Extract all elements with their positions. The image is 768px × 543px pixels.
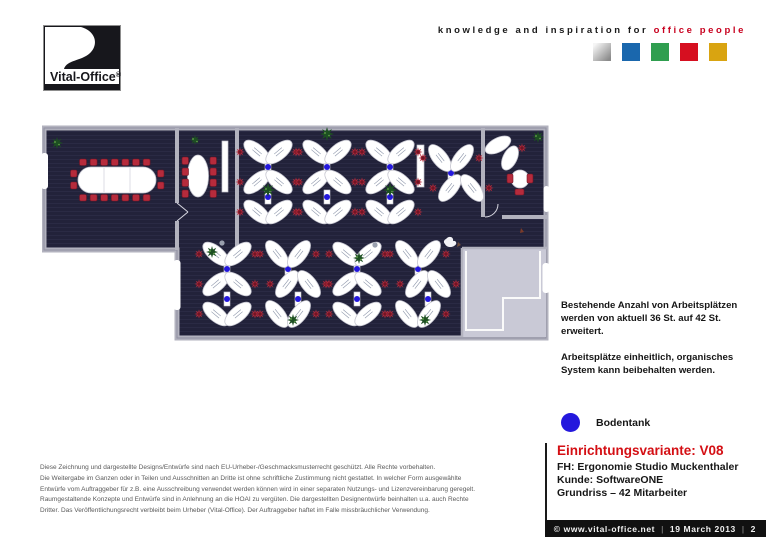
task-chair-seat (388, 312, 391, 315)
plant-leaf (290, 318, 292, 320)
task-chair-seat (421, 156, 424, 159)
task-chair-seat (197, 252, 200, 255)
plant-leaf (328, 135, 330, 137)
task-chair-seat (197, 312, 200, 315)
task-chair-seat (238, 210, 241, 213)
footer-page-number: 2 (751, 524, 756, 534)
conference-chair (90, 195, 97, 202)
door-entry-right (543, 263, 550, 293)
title-line-fh: FH: Ergonomie Studio Muckenthaler (557, 461, 762, 474)
task-chair-seat (431, 186, 434, 189)
conference-chair (71, 182, 78, 189)
task-chair-seat (360, 150, 363, 153)
bodentank-dot-icon (561, 413, 580, 432)
tagline-red: office people (654, 25, 746, 36)
meeting-chair (182, 168, 189, 176)
bodentank-dot (224, 296, 230, 302)
title-line-kunde: Kunde: SoftwareONE (557, 474, 762, 487)
bodentank-dot (425, 296, 431, 302)
meeting-chair (182, 157, 189, 165)
vital-office-logo: Vital-Office® (43, 25, 121, 91)
plant-leaf (54, 141, 56, 143)
title-line-grundriss: Grundriss – 42 Mitarbeiter (557, 487, 762, 500)
conference-table (78, 167, 156, 193)
brand-color-squares (593, 43, 727, 61)
task-chair-seat (268, 282, 271, 285)
task-chair-seat (258, 252, 261, 255)
bodentank-dot (354, 296, 360, 302)
title-block: Einrichtungsvariante: V08 FH: Ergonomie … (557, 443, 762, 500)
task-chair-seat (398, 282, 401, 285)
task-chair-seat (238, 150, 241, 153)
task-chair-seat (258, 312, 261, 315)
window-left-band (174, 260, 181, 310)
plant-leaf (356, 256, 358, 258)
bodentank-dot (324, 194, 330, 200)
conference-chair (101, 159, 108, 166)
variant-title: Einrichtungsvariante: V08 (557, 443, 762, 458)
plant-leaf (391, 191, 393, 193)
door-office-right (544, 186, 550, 212)
plant-leaf (265, 188, 267, 190)
task-chair-seat (253, 282, 256, 285)
conference-chair (80, 195, 87, 202)
task-chair-seat (383, 282, 386, 285)
task-chair-seat (487, 186, 490, 189)
logo-icon: Vital-Office® (43, 25, 121, 91)
conference-chair (90, 159, 97, 166)
whiteboard-meeting (222, 141, 228, 192)
brand-square-silver (593, 43, 611, 61)
conference-chair (133, 159, 140, 166)
plant-leaf (324, 132, 326, 134)
plant-leaf (426, 321, 428, 323)
bodentank-dot (387, 164, 393, 170)
meeting-table (188, 155, 209, 197)
footer-separator: | (742, 524, 745, 534)
task-chair-seat (314, 312, 317, 315)
office-round-table (511, 170, 529, 188)
meeting-chair (210, 157, 217, 165)
logo-text: Vital-Office® (50, 70, 121, 84)
plant-leaf (422, 318, 424, 320)
floor-plan (42, 124, 552, 342)
office-chair (507, 174, 513, 183)
office-chair (515, 189, 524, 195)
task-chair-seat (353, 210, 356, 213)
annotation-para-1: Bestehende Anzahl von Arbeitsplätzen wer… (561, 299, 761, 339)
conference-chair (143, 159, 150, 166)
plant-icon (190, 135, 200, 145)
task-chair-seat (327, 252, 330, 255)
bodentank-dot (324, 164, 330, 170)
task-chair-seat (353, 150, 356, 153)
plant-leaf (196, 141, 198, 143)
task-chair-seat (444, 252, 447, 255)
bodentank-dot (354, 266, 360, 272)
conference-chair (158, 170, 165, 177)
task-chair-seat (477, 156, 480, 159)
task-chair-seat (388, 252, 391, 255)
conference-chair (133, 195, 140, 202)
office-chair (527, 174, 533, 183)
task-chair-seat (327, 282, 330, 285)
conference-chair (71, 170, 78, 177)
tagline: knowledge and inspiration for office peo… (438, 25, 746, 36)
task-chair-seat (353, 180, 356, 183)
plant-leaf (209, 250, 211, 252)
plant-leaf (387, 188, 389, 190)
conference-chair (111, 195, 118, 202)
plant-leaf (192, 138, 194, 140)
plant-leaf (58, 144, 60, 146)
annotation-text: Bestehende Anzahl von Arbeitsplätzen wer… (561, 299, 761, 389)
legend-label: Bodentank (596, 417, 650, 429)
legal-text: Diese Zeichnung und dargestellte Designs… (40, 463, 518, 517)
conference-chair (122, 195, 129, 202)
title-divider (545, 443, 547, 520)
task-chair-seat (327, 312, 330, 315)
conference-chair (158, 182, 165, 189)
annotation-para-2: Arbeitsplätze einheitlich, organisches S… (561, 351, 761, 377)
conference-chair (101, 195, 108, 202)
bodentank-dot (265, 164, 271, 170)
conference-chair (122, 159, 129, 166)
conference-chair (80, 159, 87, 166)
footer-separator: | (661, 524, 664, 534)
meeting-chair (182, 179, 189, 187)
task-chair-seat (520, 146, 523, 149)
task-chair-seat (360, 180, 363, 183)
task-chair-seat (416, 180, 419, 183)
tagline-black: knowledge and inspiration for (438, 25, 649, 36)
brand-square-blue (622, 43, 640, 61)
meeting-chair (210, 190, 217, 198)
task-chair-seat (416, 150, 419, 153)
slide-page: Vital-Office® knowledge and inspiration … (0, 0, 768, 543)
task-chair-seat (238, 180, 241, 183)
meeting-chair (210, 168, 217, 176)
task-chair-seat (297, 180, 300, 183)
meeting-chair (182, 190, 189, 198)
brand-square-red (680, 43, 698, 61)
task-chair-seat (297, 150, 300, 153)
conference-chair (143, 195, 150, 202)
task-chair-seat (444, 312, 447, 315)
meeting-chair (210, 179, 217, 187)
plant-leaf (213, 253, 215, 255)
floor-plan-svg (42, 124, 552, 342)
plant-leaf (294, 321, 296, 323)
bodentank-dot (224, 266, 230, 272)
door-left-conference (42, 153, 48, 189)
task-chair-seat (314, 252, 317, 255)
task-chair-seat (360, 210, 363, 213)
task-chair-seat (454, 282, 457, 285)
bodentank-dot (295, 296, 301, 302)
plant-leaf (269, 191, 271, 193)
plant-leaf (539, 138, 541, 140)
plant-leaf (535, 135, 537, 137)
footer-date: 19 March 2013 (670, 524, 736, 534)
brand-square-gold (709, 43, 727, 61)
task-chair-seat (297, 210, 300, 213)
task-chair-seat (197, 282, 200, 285)
plant-leaf (360, 259, 362, 261)
task-chair-seat (416, 210, 419, 213)
conference-chair (111, 159, 118, 166)
stool (372, 242, 377, 247)
footer-bar: © www.vital-office.net | 19 March 2013 |… (545, 520, 766, 537)
brand-square-green (651, 43, 669, 61)
footer-copyright: © www.vital-office.net (554, 524, 655, 534)
legend: Bodentank (561, 413, 650, 432)
stool (219, 240, 224, 245)
